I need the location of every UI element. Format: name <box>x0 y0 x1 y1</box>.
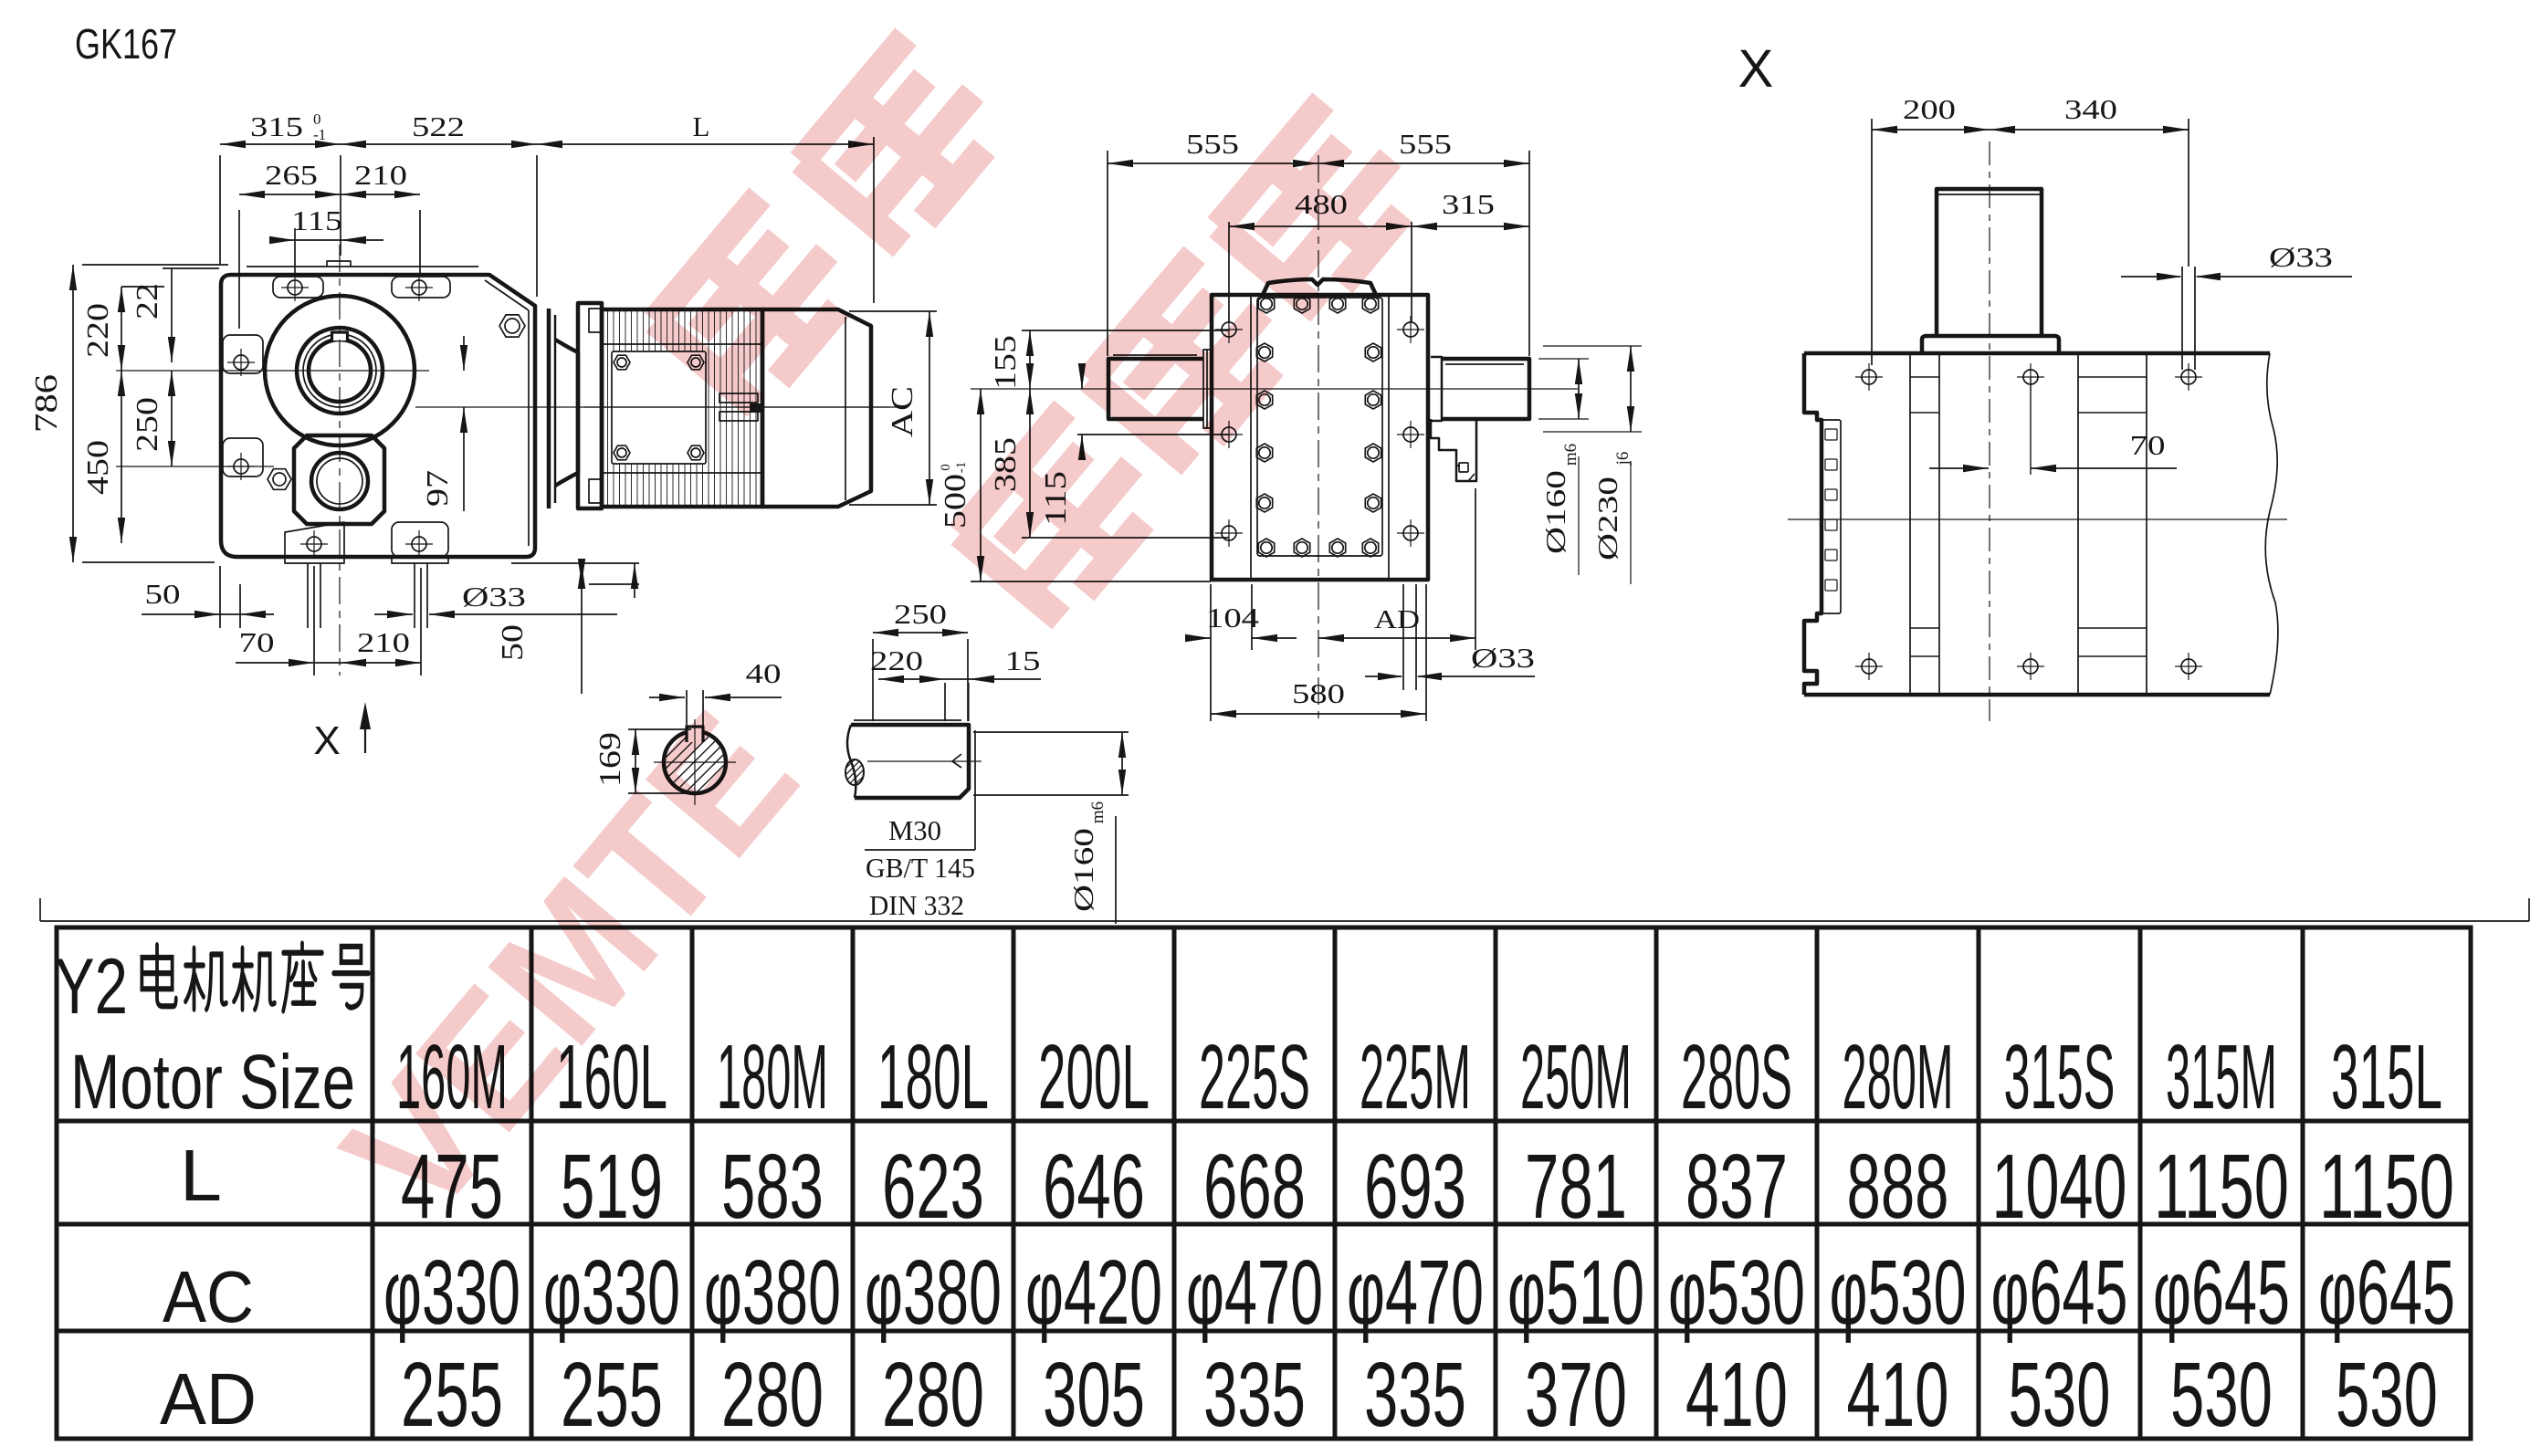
svg-text:φ420: φ420 <box>1025 1241 1162 1344</box>
svg-text:225S: 225S <box>1199 1026 1310 1128</box>
svg-text:305: 305 <box>1043 1344 1145 1446</box>
svg-text:AC: AC <box>163 1256 254 1337</box>
svg-text:210: 210 <box>354 159 407 191</box>
svg-text:255: 255 <box>401 1344 503 1446</box>
svg-text:L: L <box>180 1135 222 1216</box>
svg-text:225M: 225M <box>1360 1026 1471 1128</box>
svg-text:X: X <box>313 718 340 763</box>
svg-text:40: 40 <box>746 657 782 689</box>
svg-text:22: 22 <box>131 283 164 319</box>
svg-text:335: 335 <box>1203 1344 1306 1446</box>
svg-text:φ330: φ330 <box>543 1241 680 1344</box>
svg-text:M30: M30 <box>888 814 941 846</box>
svg-text:-1: -1 <box>954 462 969 474</box>
svg-text:AC: AC <box>886 386 919 437</box>
svg-text:781: 781 <box>1525 1136 1627 1238</box>
svg-text:φ645: φ645 <box>2153 1241 2290 1344</box>
svg-text:786: 786 <box>28 374 64 433</box>
svg-text:m6: m6 <box>1561 444 1580 466</box>
svg-text:280M: 280M <box>1843 1026 1954 1128</box>
svg-text:50: 50 <box>145 578 181 610</box>
svg-text:70: 70 <box>239 626 275 658</box>
svg-text:410: 410 <box>1847 1344 1949 1446</box>
svg-text:φ470: φ470 <box>1186 1241 1323 1344</box>
svg-text:GK167: GK167 <box>75 20 177 68</box>
svg-text:0: 0 <box>939 464 953 471</box>
svg-text:φ330: φ330 <box>383 1241 520 1344</box>
svg-text:315: 315 <box>250 110 303 142</box>
svg-text:φ645: φ645 <box>1991 1241 2128 1344</box>
svg-text:200: 200 <box>1903 93 1956 125</box>
svg-text:φ470: φ470 <box>1347 1241 1484 1344</box>
svg-text:200L: 200L <box>1038 1026 1150 1128</box>
svg-text:1040: 1040 <box>1992 1136 2127 1238</box>
svg-text:φ530: φ530 <box>1668 1241 1805 1344</box>
svg-text:φ380: φ380 <box>704 1241 841 1344</box>
svg-text:j6: j6 <box>1613 452 1633 466</box>
svg-text:410: 410 <box>1685 1344 1788 1446</box>
svg-text:φ510: φ510 <box>1507 1241 1644 1344</box>
svg-text:180L: 180L <box>877 1026 989 1128</box>
svg-text:522: 522 <box>412 110 465 142</box>
svg-text:L: L <box>693 110 710 142</box>
svg-text:370: 370 <box>1525 1344 1627 1446</box>
svg-text:φ380: φ380 <box>865 1241 1002 1344</box>
svg-text:X: X <box>1738 39 1774 99</box>
svg-text:583: 583 <box>721 1136 824 1238</box>
svg-text:837: 837 <box>1685 1136 1788 1238</box>
svg-text:693: 693 <box>1364 1136 1466 1238</box>
svg-text:646: 646 <box>1043 1136 1145 1238</box>
svg-text:555: 555 <box>1186 128 1239 160</box>
svg-text:φ645: φ645 <box>2318 1241 2455 1344</box>
svg-text:180M: 180M <box>717 1026 828 1128</box>
svg-text:280: 280 <box>721 1344 824 1446</box>
svg-text:250M: 250M <box>1520 1026 1632 1128</box>
svg-text:1150: 1150 <box>2319 1136 2454 1238</box>
svg-text:15: 15 <box>1005 644 1041 676</box>
svg-text:AD: AD <box>160 1358 257 1440</box>
svg-text:104: 104 <box>1206 602 1260 634</box>
svg-text:530: 530 <box>2170 1344 2273 1446</box>
svg-text:Ø160: Ø160 <box>1067 828 1099 912</box>
svg-text:Ø33: Ø33 <box>2269 241 2333 273</box>
svg-text:280S: 280S <box>1681 1026 1792 1128</box>
svg-text:115: 115 <box>291 204 342 236</box>
svg-text:250: 250 <box>894 598 947 630</box>
svg-text:155: 155 <box>989 335 1023 390</box>
svg-text:Ø33: Ø33 <box>1471 642 1535 674</box>
svg-text:250: 250 <box>131 397 164 452</box>
svg-text:888: 888 <box>1847 1136 1949 1238</box>
svg-text:519: 519 <box>561 1136 663 1238</box>
svg-text:265: 265 <box>265 159 318 191</box>
svg-text:AD: AD <box>1374 605 1420 634</box>
svg-text:315L: 315L <box>2331 1026 2442 1128</box>
svg-text:555: 555 <box>1399 128 1452 160</box>
svg-text:210: 210 <box>357 626 410 658</box>
svg-text:Y2: Y2 <box>55 943 128 1031</box>
svg-text:97: 97 <box>421 470 455 507</box>
svg-text:315: 315 <box>1442 188 1495 220</box>
svg-text:1150: 1150 <box>2154 1136 2289 1238</box>
svg-text:280: 280 <box>882 1344 984 1446</box>
svg-text:DIN 332: DIN 332 <box>869 889 964 921</box>
svg-text:580: 580 <box>1292 677 1345 709</box>
svg-text:m6: m6 <box>1088 801 1108 823</box>
svg-text:Ø230: Ø230 <box>1591 477 1623 560</box>
svg-text:50: 50 <box>496 624 530 661</box>
svg-text:φ530: φ530 <box>1830 1241 1967 1344</box>
svg-text:GB/T 145: GB/T 145 <box>866 852 975 884</box>
svg-text:623: 623 <box>882 1136 984 1238</box>
svg-text:70: 70 <box>2130 429 2166 461</box>
svg-text:315M: 315M <box>2166 1026 2277 1128</box>
svg-text:255: 255 <box>561 1344 663 1446</box>
svg-text:668: 668 <box>1203 1136 1306 1238</box>
svg-text:450: 450 <box>81 440 115 495</box>
svg-text:315S: 315S <box>2004 1026 2116 1128</box>
svg-text:530: 530 <box>2336 1344 2438 1446</box>
svg-text:Ø33: Ø33 <box>462 581 526 613</box>
svg-text:340: 340 <box>2064 93 2117 125</box>
svg-text:335: 335 <box>1364 1344 1466 1446</box>
svg-text:Ø160: Ø160 <box>1539 470 1571 554</box>
svg-text:-1: -1 <box>313 126 326 143</box>
svg-text:220: 220 <box>81 303 115 358</box>
svg-text:220: 220 <box>870 644 923 676</box>
svg-text:Motor Size: Motor Size <box>70 1039 355 1125</box>
svg-text:530: 530 <box>2009 1344 2111 1446</box>
